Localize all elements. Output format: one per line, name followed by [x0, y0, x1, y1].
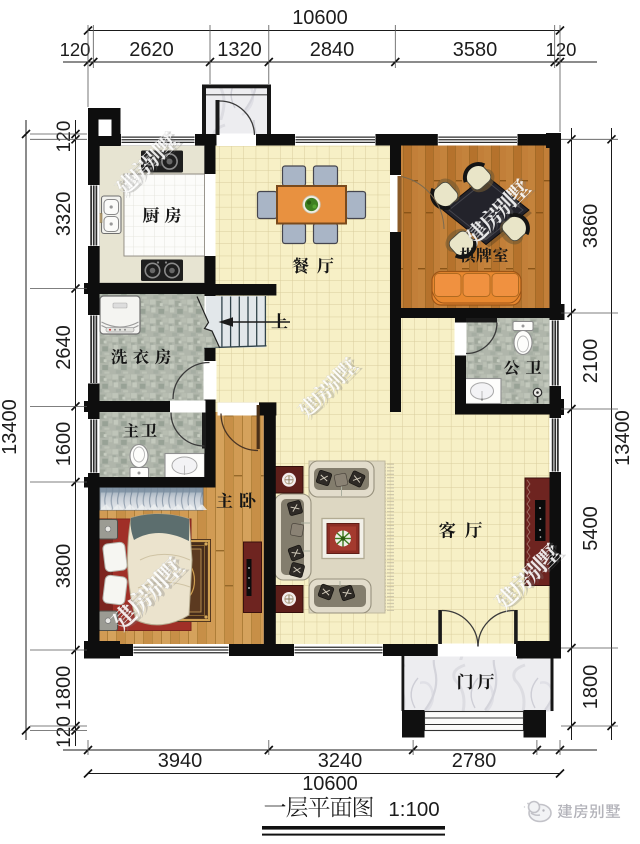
svg-text:13400: 13400 [612, 410, 634, 466]
svg-text:3320: 3320 [53, 192, 75, 237]
svg-text:1320: 1320 [217, 39, 262, 61]
svg-text:120: 120 [54, 716, 75, 748]
svg-text:120: 120 [60, 39, 91, 60]
svg-text:2640: 2640 [53, 325, 75, 370]
svg-text:2100: 2100 [580, 339, 602, 384]
svg-text:3580: 3580 [453, 39, 498, 61]
svg-text:10600: 10600 [302, 773, 358, 795]
svg-text:1800: 1800 [53, 666, 75, 711]
svg-text:2780: 2780 [452, 750, 497, 772]
svg-text:1600: 1600 [53, 422, 75, 467]
svg-text:120: 120 [546, 39, 577, 60]
svg-text:1:100: 1:100 [388, 798, 439, 821]
svg-text:2840: 2840 [310, 39, 355, 61]
svg-text:1800: 1800 [580, 665, 602, 710]
svg-text:3860: 3860 [580, 204, 602, 249]
svg-text:3800: 3800 [53, 544, 75, 589]
svg-text:5400: 5400 [580, 506, 602, 551]
svg-text:2620: 2620 [129, 39, 174, 61]
svg-text:120: 120 [54, 121, 75, 153]
svg-text:13400: 13400 [0, 399, 21, 455]
svg-text:10600: 10600 [292, 7, 348, 29]
svg-text:3240: 3240 [318, 750, 363, 772]
svg-text:3940: 3940 [158, 750, 203, 772]
